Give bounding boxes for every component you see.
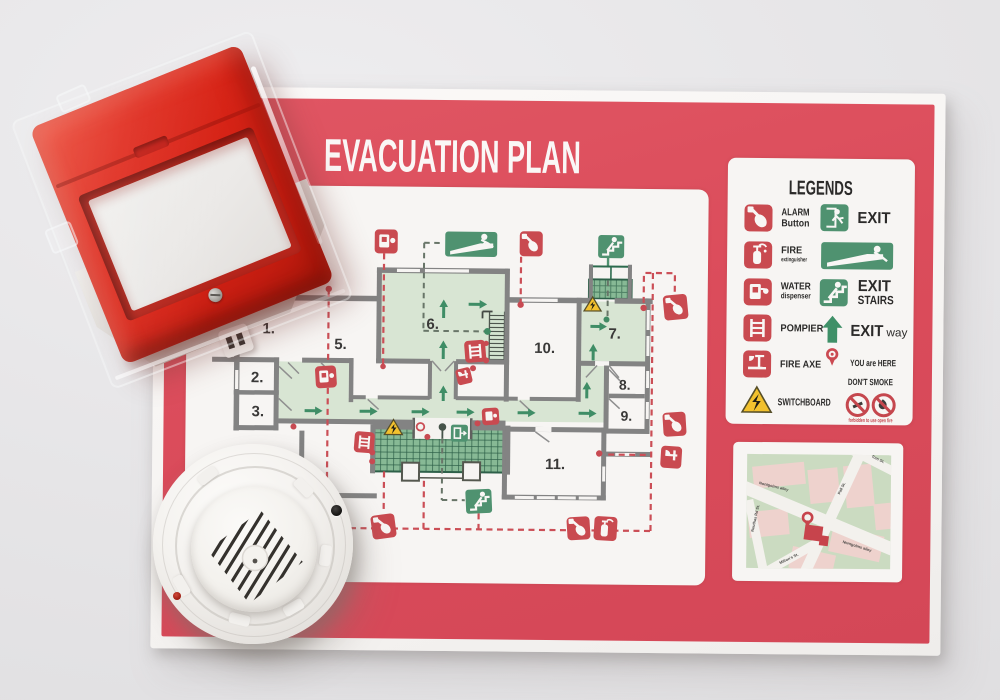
svg-text:YOU are HERE: YOU are HERE — [850, 358, 896, 368]
svg-text:Button: Button — [781, 218, 809, 229]
svg-text:DON'T SMOKE: DON'T SMOKE — [848, 377, 893, 387]
svg-text:FIRE: FIRE — [781, 245, 802, 256]
svg-text:FIRE AXE: FIRE AXE — [780, 359, 821, 370]
svg-text:STAIRS: STAIRS — [858, 293, 894, 307]
svg-text:way: way — [885, 327, 907, 339]
svg-text:9.: 9. — [620, 408, 632, 424]
svg-text:dispenser: dispenser — [781, 291, 811, 300]
svg-text:8.: 8. — [619, 377, 631, 393]
svg-text:ALARM: ALARM — [781, 207, 809, 218]
svg-text:POMPIER: POMPIER — [780, 323, 824, 334]
svg-text:11.: 11. — [545, 456, 565, 473]
svg-text:3.: 3. — [252, 403, 265, 420]
svg-text:2.: 2. — [251, 369, 264, 386]
svg-text:7.: 7. — [608, 326, 621, 343]
svg-text:EXIT: EXIT — [850, 323, 883, 340]
svg-text:SWITCHBOARD: SWITCHBOARD — [778, 397, 831, 409]
svg-text:10.: 10. — [534, 340, 555, 357]
svg-text:forbidden to use open fire: forbidden to use open fire — [849, 418, 893, 424]
svg-text:LEGENDS: LEGENDS — [789, 177, 853, 200]
svg-text:EXIT: EXIT — [857, 210, 890, 227]
svg-text:extinguisher: extinguisher — [781, 257, 808, 263]
svg-text:5.: 5. — [334, 336, 347, 353]
